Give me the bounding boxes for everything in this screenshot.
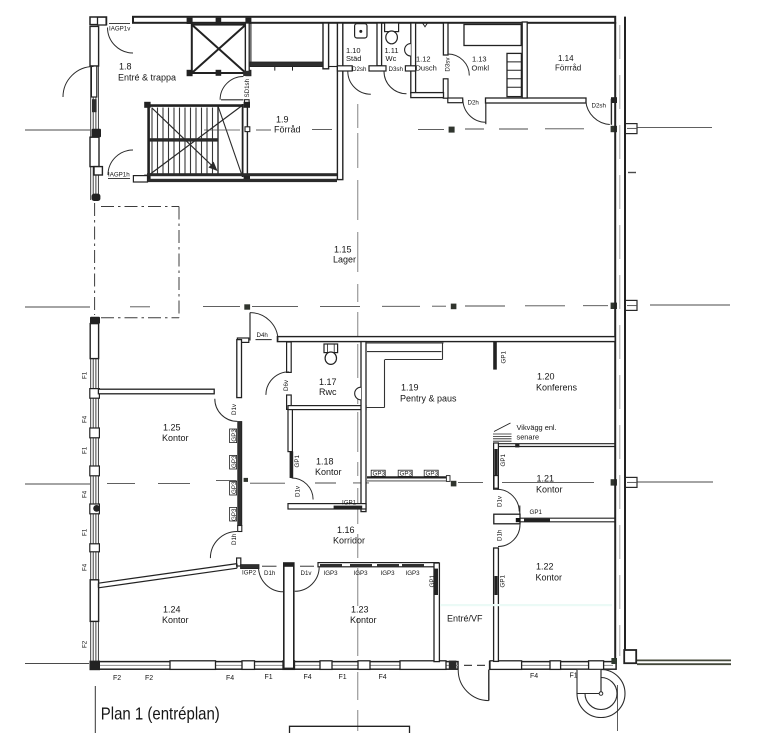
svg-text:IGP3: IGP3 (354, 570, 369, 577)
svg-text:GP1: GP1 (501, 351, 508, 364)
svg-text:1.22: 1.22 (536, 562, 554, 572)
svg-text:GP3: GP3 (426, 470, 439, 477)
svg-text:F4: F4 (82, 563, 89, 571)
svg-text:D1v: D1v (497, 495, 504, 507)
svg-text:Plan 1 (entréplan): Plan 1 (entréplan) (101, 704, 220, 724)
svg-text:Korridor: Korridor (333, 536, 365, 546)
svg-text:Konferens: Konferens (536, 383, 578, 393)
svg-text:IGP3: IGP3 (324, 570, 339, 577)
svg-text:1.9: 1.9 (276, 115, 289, 125)
svg-text:1.20: 1.20 (537, 372, 555, 382)
svg-text:F2: F2 (113, 675, 121, 682)
svg-text:F2: F2 (82, 640, 89, 648)
svg-text:GP3: GP3 (231, 481, 238, 494)
svg-text:1.16: 1.16 (337, 525, 355, 535)
svg-text:D1h: D1h (497, 529, 504, 541)
svg-text:F1: F1 (82, 528, 89, 536)
svg-text:1.21: 1.21 (537, 474, 555, 484)
svg-text:Entré & trappa: Entré & trappa (118, 73, 176, 83)
svg-text:D6v: D6v (283, 379, 290, 391)
svg-text:IGP3: IGP3 (381, 570, 396, 577)
svg-text:D1v: D1v (295, 485, 302, 497)
svg-text:D1v: D1v (301, 570, 313, 577)
svg-text:GP3: GP3 (231, 508, 238, 521)
svg-text:IAGP1v: IAGP1v (109, 26, 131, 33)
svg-text:1.19: 1.19 (401, 383, 419, 393)
svg-text:1.23: 1.23 (351, 605, 369, 615)
svg-text:Förrråd: Förrråd (555, 64, 581, 73)
svg-text:D2sh: D2sh (352, 66, 367, 73)
svg-text:1.24: 1.24 (163, 605, 181, 615)
svg-text:1.18: 1.18 (316, 457, 334, 467)
svg-text:D1v: D1v (231, 403, 238, 415)
svg-text:F4: F4 (82, 490, 89, 498)
svg-text:D2h: D2h (468, 100, 480, 107)
svg-text:F4: F4 (226, 675, 234, 682)
svg-text:SD1sh: SD1sh (244, 78, 251, 97)
svg-text:1.12: 1.12 (416, 55, 431, 64)
svg-text:D4h: D4h (257, 332, 269, 339)
svg-text:F4: F4 (82, 415, 89, 423)
svg-text:F1: F1 (339, 674, 347, 681)
svg-text:GP3: GP3 (373, 470, 386, 477)
svg-text:D3sv: D3sv (444, 57, 451, 72)
svg-text:Kontor: Kontor (315, 467, 342, 477)
svg-text:F4: F4 (304, 674, 312, 681)
svg-text:F4: F4 (379, 674, 387, 681)
svg-text:1.17: 1.17 (319, 377, 337, 387)
svg-text:Omkl: Omkl (472, 64, 490, 73)
svg-text:F4: F4 (530, 673, 538, 680)
svg-text:GP1: GP1 (294, 455, 301, 468)
svg-text:1.13: 1.13 (472, 55, 487, 64)
svg-text:Kontor: Kontor (162, 433, 189, 443)
svg-text:Förråd: Förråd (274, 125, 301, 135)
svg-text:Kontor: Kontor (536, 485, 563, 495)
svg-text:Lager: Lager (333, 255, 356, 265)
svg-text:F1: F1 (570, 673, 578, 680)
svg-text:D2sh: D2sh (592, 103, 607, 110)
svg-text:GP1: GP1 (500, 454, 507, 467)
svg-text:GP3: GP3 (231, 429, 238, 442)
svg-text:IGP3: IGP3 (406, 570, 421, 577)
svg-text:Vikvägg enl.: Vikvägg enl. (517, 423, 557, 432)
svg-text:Kontor: Kontor (162, 615, 189, 625)
svg-text:1.15: 1.15 (334, 245, 352, 255)
svg-text:1.25: 1.25 (163, 423, 181, 433)
svg-text:1.14: 1.14 (558, 54, 574, 63)
svg-text:GP1: GP1 (500, 575, 507, 588)
svg-text:Pentry & paus: Pentry & paus (400, 394, 457, 404)
svg-text:F1: F1 (265, 674, 273, 681)
svg-text:Kontor: Kontor (536, 573, 563, 583)
svg-text:1.8: 1.8 (119, 62, 132, 72)
svg-text:D1h: D1h (231, 533, 238, 545)
svg-text:IGP2: IGP2 (242, 570, 257, 577)
svg-text:Städ: Städ (346, 54, 361, 63)
svg-text:GP1: GP1 (530, 509, 543, 516)
svg-text:IGP1: IGP1 (342, 500, 357, 507)
svg-text:F1: F1 (82, 371, 89, 379)
svg-text:senare: senare (517, 433, 540, 442)
svg-text:GP3: GP3 (400, 470, 413, 477)
svg-text:Kontor: Kontor (350, 615, 377, 625)
svg-text:Entré/VF: Entré/VF (447, 614, 483, 624)
svg-text:Rwc: Rwc (319, 387, 337, 397)
svg-text:D3sh: D3sh (389, 66, 404, 73)
svg-text:F1: F1 (82, 446, 89, 454)
svg-text:GP1: GP1 (429, 574, 436, 587)
svg-text:F2: F2 (145, 675, 153, 682)
svg-text:Dusch: Dusch (416, 64, 437, 73)
svg-text:D1h: D1h (264, 570, 276, 577)
svg-text:IAGP1h: IAGP1h (108, 171, 130, 178)
svg-text:Wc: Wc (386, 54, 397, 63)
svg-text:GP3: GP3 (231, 455, 238, 468)
